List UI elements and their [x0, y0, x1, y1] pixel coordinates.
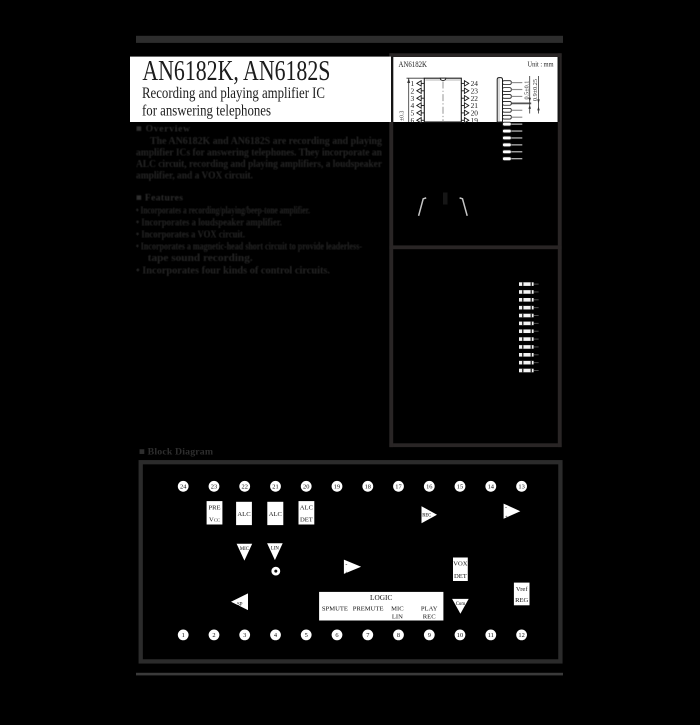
svg-text:REG: REG: [515, 597, 528, 604]
svg-text:17: 17: [395, 484, 402, 491]
svg-text:LIN: LIN: [392, 613, 403, 620]
svg-text:9: 9: [428, 632, 431, 639]
svg-text:ALC: ALC: [300, 504, 314, 511]
svg-text:Recording and playing amplifie: Recording and playing amplifier IC: [142, 85, 325, 102]
svg-text:LOGIC: LOGIC: [370, 593, 392, 602]
svg-text:• Incorporates four kinds of c: • Incorporates four kinds of control cir…: [136, 266, 331, 277]
svg-text:for answering telephones: for answering telephones: [142, 103, 271, 120]
svg-text:AN6182K, AN6182S: AN6182K, AN6182S: [142, 55, 330, 87]
svg-text:ALC: ALC: [269, 511, 283, 518]
svg-text:PLAY: PLAY: [421, 606, 438, 613]
svg-text:amplifier ICs for answering te: amplifier ICs for answering telephones. …: [136, 147, 382, 158]
svg-text:±0.3: ±0.3: [399, 110, 405, 121]
svg-text:DET: DET: [300, 516, 313, 523]
svg-text:■ Overview: ■ Overview: [136, 123, 190, 134]
svg-text:ALC: ALC: [237, 511, 251, 518]
svg-text:19: 19: [471, 116, 479, 125]
svg-text:20: 20: [303, 484, 309, 491]
svg-text:+: +: [345, 570, 348, 576]
svg-text:MIC: MIC: [240, 547, 249, 552]
svg-text:Unit : mm: Unit : mm: [528, 59, 554, 68]
svg-text:12: 12: [518, 632, 524, 639]
svg-text:VCC: VCC: [209, 516, 220, 523]
svg-text:0.5±0.1: 0.5±0.1: [523, 81, 530, 100]
svg-text:tape sound recording.: tape sound recording.: [148, 253, 254, 264]
svg-text:2: 2: [212, 632, 215, 639]
svg-text:14: 14: [488, 484, 495, 491]
svg-text:Com: Com: [456, 602, 466, 607]
svg-text:5: 5: [305, 632, 308, 639]
svg-text:8: 8: [397, 632, 400, 639]
svg-text:+: +: [505, 514, 508, 520]
svg-text:amplifier, and a VOX circuit.: amplifier, and a VOX circuit.: [136, 170, 253, 181]
svg-text:■ Features: ■ Features: [136, 192, 183, 203]
svg-text:■ Block Diagram: ■ Block Diagram: [139, 446, 213, 457]
svg-text:-: -: [505, 505, 507, 511]
svg-text:23: 23: [211, 484, 217, 491]
svg-text:VOX: VOX: [453, 561, 468, 568]
svg-text:REC: REC: [423, 613, 436, 620]
svg-text:MIC: MIC: [391, 606, 404, 613]
svg-text:• Incorporates a recording/pla: • Incorporates a recording/playing/beep-…: [136, 205, 310, 216]
svg-text:10: 10: [457, 632, 463, 639]
svg-text:21: 21: [272, 484, 278, 491]
svg-text:24: 24: [180, 484, 187, 491]
svg-text:19: 19: [334, 484, 340, 491]
svg-text:0.9±0.25: 0.9±0.25: [532, 79, 539, 101]
svg-text:6: 6: [335, 632, 338, 639]
svg-text:The AN6182K and AN6182S are re: The AN6182K and AN6182S are recording an…: [150, 136, 382, 147]
svg-text:13: 13: [518, 484, 524, 491]
svg-text:• Incorporates a loudspeaker a: • Incorporates a loudspeaker amplifier.: [136, 218, 282, 229]
svg-text:6: 6: [410, 116, 414, 125]
svg-text:DET: DET: [454, 573, 467, 580]
svg-text:ALC circuit, recording and pla: ALC circuit, recording and playing ampli…: [136, 159, 383, 170]
svg-text:• Incorporates a magnetic-head: • Incorporates a magnetic-head short cir…: [136, 242, 362, 253]
svg-text:11: 11: [488, 632, 494, 639]
svg-text:-: -: [345, 562, 347, 568]
svg-text:16: 16: [426, 484, 432, 491]
svg-text:PREMUTE: PREMUTE: [353, 606, 384, 613]
svg-text:LIN: LIN: [271, 546, 280, 551]
svg-text:18: 18: [365, 484, 371, 491]
svg-text:15: 15: [457, 484, 463, 491]
svg-text:• Incorporates a VOX circuit.: • Incorporates a VOX circuit.: [136, 230, 245, 241]
svg-text:REC: REC: [422, 514, 431, 519]
svg-text:1: 1: [182, 632, 185, 639]
svg-text:3: 3: [243, 632, 246, 639]
svg-text:Vref: Vref: [516, 586, 528, 593]
svg-text:AN6182K: AN6182K: [399, 60, 428, 69]
svg-text:22: 22: [242, 484, 248, 491]
svg-text:SPMUTE: SPMUTE: [322, 606, 348, 613]
svg-text:SP: SP: [237, 603, 243, 608]
svg-text:PRE: PRE: [208, 504, 220, 511]
